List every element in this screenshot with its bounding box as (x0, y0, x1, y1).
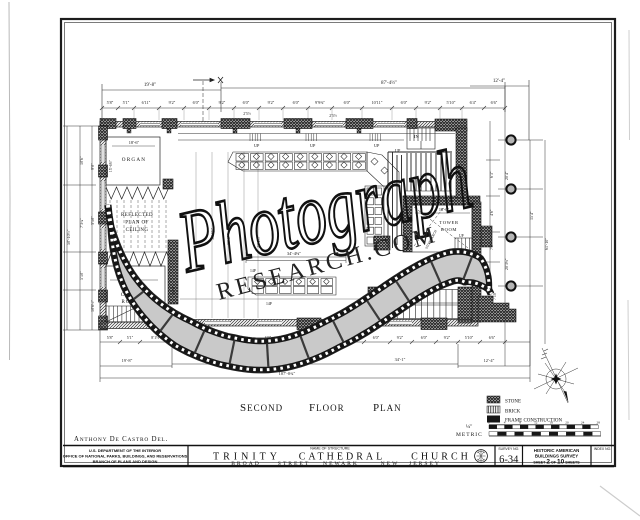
svg-text:UP: UP (254, 143, 260, 148)
svg-text:15′-6½″: 15′-6½″ (109, 159, 113, 172)
svg-text:6′3″: 6′3″ (489, 171, 494, 178)
svg-text:12′-4″: 12′-4″ (493, 79, 505, 84)
svg-text:50′-10½″: 50′-10½″ (66, 229, 71, 245)
svg-text:10′6½″: 10′6½″ (90, 300, 95, 312)
svg-text:10′11": 10′11" (372, 100, 383, 105)
svg-text:SECOND: SECOND (240, 402, 283, 414)
svg-text:6′0": 6′0" (344, 100, 351, 105)
svg-text:OFFICE OF NATIONAL PARKS, BUIL: OFFICE OF NATIONAL PARKS, BUILDINGS, AND… (63, 454, 188, 459)
svg-text:19′-8″: 19′-8″ (122, 358, 133, 363)
svg-text:JERSEY: JERSEY (409, 461, 441, 467)
svg-text:19′-8″: 19′-8″ (144, 83, 156, 88)
svg-text:6′0": 6′0" (373, 335, 380, 340)
svg-text:SURVEY NO.: SURVEY NO. (498, 447, 519, 451)
svg-text:6′0": 6′0" (421, 335, 428, 340)
svg-text:6′6": 6′6" (489, 335, 496, 340)
svg-text:5′10": 5′10" (465, 335, 474, 340)
svg-text:10′6″: 10′6″ (79, 156, 84, 165)
svg-text:4′6″: 4′6″ (489, 209, 494, 216)
svg-text:3′10″: 3′10″ (90, 216, 95, 225)
svg-text:12: 12 (534, 421, 538, 425)
svg-text:8: 8 (519, 421, 521, 425)
svg-text:6′0": 6′0" (243, 100, 250, 105)
svg-text:5′1": 5′1" (127, 335, 134, 340)
svg-text:9′9⅜": 9′9⅜" (315, 100, 325, 105)
svg-text:6′0": 6′0" (293, 100, 300, 105)
svg-text:9′2": 9′2" (444, 335, 451, 340)
svg-text:14P: 14P (266, 302, 272, 306)
svg-text:ORGAN: ORGAN (122, 157, 146, 163)
svg-text:ANTHONY DE CASTRO DEL.: ANTHONY DE CASTRO DEL. (74, 436, 168, 443)
svg-text:0: 0 (488, 421, 490, 425)
svg-text:HISTORIC AMERICAN: HISTORIC AMERICAN (534, 448, 580, 453)
svg-text:6′4": 6′4" (470, 100, 477, 105)
svg-text:61′-10″: 61′-10″ (544, 238, 549, 250)
svg-text:NEWARK: NEWARK (323, 461, 359, 467)
svg-text:STONE: STONE (505, 400, 521, 405)
svg-text:2′5½: 2′5½ (243, 112, 251, 116)
svg-text:20: 20 (565, 421, 569, 425)
svg-text:28: 28 (597, 421, 601, 425)
svg-text:5′1": 5′1" (123, 100, 130, 105)
svg-text:4: 4 (504, 421, 506, 425)
svg-text:NAME OF STRUCTURE: NAME OF STRUCTURE (310, 447, 350, 451)
svg-text:87′-4½″: 87′-4½″ (381, 81, 397, 86)
svg-text:METRIC: METRIC (456, 432, 483, 438)
svg-text:UP: UP (459, 234, 464, 238)
svg-text:34′-1″: 34′-1″ (395, 357, 406, 362)
svg-text:9′2": 9′2" (268, 100, 275, 105)
svg-text:BROAD: BROAD (231, 461, 261, 467)
svg-text:FLOOR: FLOOR (309, 402, 345, 414)
svg-text:6-34: 6-34 (499, 455, 519, 466)
svg-text:¼″: ¼″ (466, 424, 472, 430)
svg-text:7′1″: 7′1″ (489, 243, 494, 250)
svg-text:12′-4″: 12′-4″ (484, 358, 495, 363)
svg-text:REFLECTED: REFLECTED (121, 213, 153, 218)
svg-text:PLAN: PLAN (373, 402, 402, 414)
svg-text:9′2": 9′2" (425, 100, 432, 105)
svg-text:9′2": 9′2" (169, 100, 176, 105)
svg-text:UP: UP (310, 143, 316, 148)
svg-text:BRANCH OF PLANS AND DESIGN: BRANCH OF PLANS AND DESIGN (93, 459, 158, 464)
svg-text:6′6": 6′6" (491, 100, 498, 105)
svg-text:SHEET 2 OF 10 SHEETS: SHEET 2 OF 10 SHEETS (533, 459, 580, 466)
svg-text:24: 24 (581, 421, 585, 425)
svg-text:5′10": 5′10" (447, 100, 456, 105)
svg-text:7′3¾″: 7′3¾″ (79, 218, 84, 228)
svg-text:16′-0″: 16′-0″ (172, 285, 176, 295)
svg-text:CEILING: CEILING (126, 228, 149, 233)
svg-text:INDEX NO.: INDEX NO. (594, 447, 611, 451)
svg-text:18′-6″: 18′-6″ (129, 140, 140, 145)
svg-text:6′0": 6′0" (401, 100, 408, 105)
svg-text:6′11": 6′11" (142, 100, 151, 105)
svg-text:5′8": 5′8" (107, 335, 114, 340)
svg-text:5′10″: 5′10″ (79, 271, 84, 280)
svg-text:20′4″: 20′4″ (504, 171, 509, 180)
svg-text:PLAN OF: PLAN OF (125, 221, 149, 226)
svg-text:NEW: NEW (381, 461, 400, 467)
svg-text:9′0″: 9′0″ (90, 163, 95, 170)
svg-text:6′0": 6′0" (193, 100, 200, 105)
svg-text:5′8": 5′8" (107, 100, 114, 105)
svg-text:BRICK: BRICK (505, 410, 521, 415)
svg-text:U.S. DEPARTMENT OF THE INTERIO: U.S. DEPARTMENT OF THE INTERIOR (89, 448, 161, 453)
svg-text:15′4″: 15′4″ (529, 211, 534, 220)
svg-text:9′2": 9′2" (397, 335, 404, 340)
svg-text:9′2": 9′2" (219, 100, 226, 105)
svg-text:20′3⅜″: 20′3⅜″ (504, 258, 509, 270)
svg-text:2′5½: 2′5½ (329, 114, 337, 118)
svg-text:16: 16 (550, 421, 554, 425)
svg-text:STREET: STREET (278, 461, 311, 467)
